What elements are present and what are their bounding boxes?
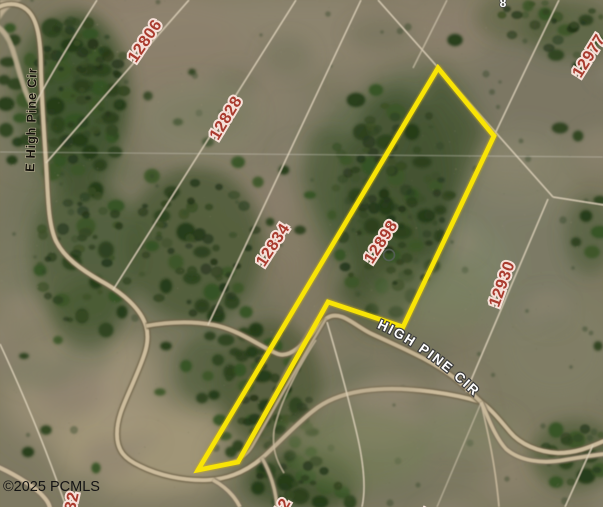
svg-text:©2025 PCMLS: ©2025 PCMLS xyxy=(3,479,100,495)
svg-text:8: 8 xyxy=(500,0,507,10)
svg-text:E High Pine Cir: E High Pine Cir xyxy=(22,67,40,172)
